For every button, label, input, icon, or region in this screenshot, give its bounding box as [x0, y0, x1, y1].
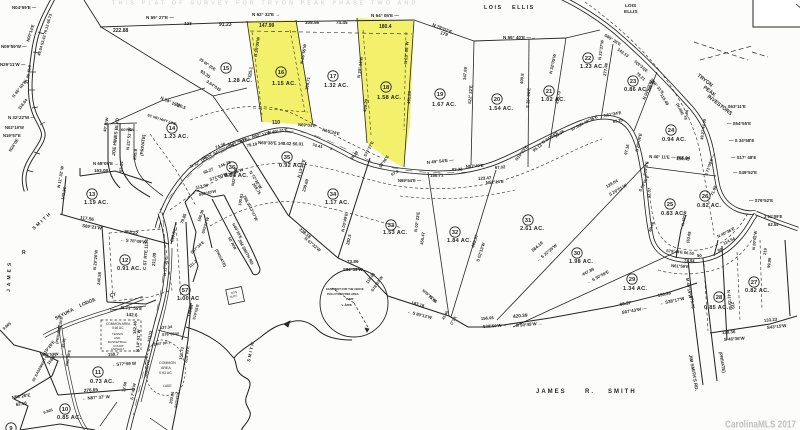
svg-text:276.65: 276.65 — [84, 387, 99, 393]
svg-text:CarolinaMLS 2017: CarolinaMLS 2017 — [725, 420, 796, 430]
svg-text:N 62° 32'E →: N 62° 32'E → — [252, 12, 280, 17]
svg-text:18: 18 — [383, 85, 390, 91]
svg-text:15: 15 — [223, 66, 230, 72]
svg-text:0.93 AC.: 0.93 AC. — [159, 371, 173, 375]
svg-text:137.34: 137.34 — [160, 324, 173, 330]
svg-text:1.84 AC.: 1.84 AC. — [447, 238, 471, 244]
svg-text:211.09: 211.09 — [151, 252, 157, 266]
svg-text:N 68°09'E →: N 68°09'E → — [93, 161, 119, 166]
svg-text:83.23: 83.23 — [452, 166, 463, 172]
svg-text:SMITH: SMITH — [608, 389, 637, 395]
svg-text:1.02 AC.: 1.02 AC. — [541, 97, 565, 103]
svg-text:LOIS: LOIS — [484, 5, 503, 11]
svg-text:N19°57'E: N19°57'E — [3, 133, 21, 138]
svg-text:S82°35'W: S82°35'W — [343, 267, 363, 272]
svg-text:1.19 AC.: 1.19 AC. — [84, 200, 108, 206]
svg-text:POLLUTION FREE AREA: POLLUTION FREE AREA — [327, 292, 359, 296]
svg-text:147.99: 147.99 — [259, 23, 275, 29]
svg-text:N 32°22'W —: N 32°22'W — — [8, 115, 35, 120]
svg-text:62.54: 62.54 — [768, 222, 779, 227]
svg-text:57: 57 — [182, 288, 188, 294]
svg-text:ASPHALT: ASPHALT — [111, 347, 125, 351]
svg-text:ELLIS: ELLIS — [512, 5, 535, 11]
svg-text:26: 26 — [702, 194, 709, 200]
svg-text:74.94: 74.94 — [684, 258, 695, 264]
svg-text:N02°19'W: N02°19'W — [5, 125, 24, 130]
svg-text:33: 33 — [388, 223, 395, 229]
svg-text:1.23 AC.: 1.23 AC. — [164, 134, 188, 140]
svg-text:THIS PLAT OF SURVEY FOR TRYON: THIS PLAT OF SURVEY FOR TRYON PEAK PHASE… — [112, 1, 418, 7]
svg-text:31: 31 — [525, 218, 532, 224]
svg-text:150.71: 150.71 — [430, 173, 444, 178]
svg-text:110: 110 — [272, 120, 280, 126]
svg-text:JAMES: JAMES — [6, 260, 13, 292]
svg-text:73.89: 73.89 — [347, 259, 359, 264]
svg-text:25: 25 — [667, 202, 674, 208]
svg-text:EASEMENT FOR THE ABOVE: EASEMENT FOR THE ABOVE — [326, 287, 364, 291]
svg-text:1.32 AC.: 1.32 AC. — [324, 83, 348, 89]
svg-text:PUMP: PUMP — [346, 297, 354, 301]
svg-text:AREA: AREA — [161, 366, 171, 370]
svg-text:0.66 AC.: 0.66 AC. — [112, 326, 124, 330]
svg-text:32: 32 — [452, 230, 458, 236]
svg-text:347.69: 347.69 — [462, 66, 468, 80]
svg-text:180.4: 180.4 — [379, 24, 392, 30]
svg-text:R.: R. — [585, 389, 595, 395]
svg-text:30: 30 — [574, 251, 580, 257]
svg-text:29: 29 — [629, 277, 636, 283]
svg-text:28: 28 — [716, 295, 723, 301]
svg-text:3 61°09'E: 3 61°09'E — [764, 214, 782, 219]
svg-text:COMMON: COMMON — [159, 361, 176, 365]
svg-text:←60'R/W→: ←60'R/W→ — [117, 127, 138, 132]
svg-text:154.45: 154.45 — [676, 156, 690, 161]
svg-text:— S54°55'E: — S54°55'E — [727, 121, 751, 126]
svg-text:1.58 AC.: 1.58 AC. — [377, 95, 401, 101]
svg-text:74.45: 74.45 — [336, 20, 348, 25]
svg-text:156.06: 156.06 — [481, 315, 495, 321]
svg-text:N69°54'E —: N69°54'E — — [398, 178, 422, 183]
svg-text:2.61 AC.: 2.61 AC. — [520, 226, 544, 232]
svg-text:N 59° 27'E —: N 59° 27'E — — [146, 15, 174, 20]
svg-text:1.98 AC.: 1.98 AC. — [569, 259, 593, 265]
svg-text:67.02: 67.02 — [495, 164, 506, 170]
svg-text:1.00 AC: 1.00 AC — [177, 296, 199, 302]
svg-text:22: 22 — [585, 56, 591, 62]
svg-text:— S 34°58'E: — S 34°58'E — [729, 138, 754, 143]
svg-text:R: R — [22, 250, 26, 256]
svg-text:14: 14 — [169, 126, 176, 132]
svg-text:0.94 AC.: 0.94 AC. — [662, 137, 686, 143]
svg-text:12: 12 — [122, 258, 128, 264]
svg-text:0.73 AC.: 0.73 AC. — [90, 379, 114, 385]
svg-text:— S76°52'E: — S76°52'E — [749, 198, 773, 203]
svg-text:N29°11'W —: N29°11'W — — [0, 62, 26, 67]
svg-text:91.23: 91.23 — [219, 22, 232, 28]
svg-text:1.23 AC.: 1.23 AC. — [580, 64, 604, 70]
svg-text:N 56° 40'E —→: N 56° 40'E —→ — [503, 35, 536, 40]
svg-text:50: 50 — [697, 253, 702, 258]
svg-text:27: 27 — [751, 280, 757, 286]
svg-text:N04°59'E —: N04°59'E — — [12, 5, 37, 10]
svg-text:1.28 AC.: 1.28 AC. — [228, 78, 252, 84]
svg-text:34: 34 — [330, 192, 337, 198]
svg-text:N09°59'W —: N09°59'W — — [1, 44, 27, 49]
svg-text:10: 10 — [62, 407, 68, 413]
svg-text:JAMES: JAMES — [536, 389, 567, 395]
svg-text:0.85 AC.: 0.85 AC. — [704, 305, 728, 311]
svg-text:35: 35 — [284, 155, 291, 161]
svg-text:162.46: 162.46 — [132, 320, 138, 334]
svg-text:159.7: 159.7 — [108, 351, 120, 357]
svg-text:1.34 AC.: 1.34 AC. — [623, 286, 647, 292]
svg-text:— S49°52'E: — S49°52'E — [733, 170, 757, 175]
svg-text:N 64° 05'E —: N 64° 05'E — — [371, 13, 399, 18]
svg-text:108.56: 108.56 — [305, 20, 319, 25]
svg-text:0.91 AC.: 0.91 AC. — [117, 266, 141, 272]
svg-text:142.6: 142.6 — [126, 312, 138, 318]
svg-text:23: 23 — [630, 79, 637, 85]
svg-text:41.07: 41.07 — [646, 187, 652, 198]
svg-text:24: 24 — [668, 128, 675, 134]
svg-text:0.85 AC.: 0.85 AC. — [57, 415, 81, 421]
svg-text:∿ Area: ∿ Area — [341, 303, 352, 307]
svg-text:1.15 AC.: 1.15 AC. — [272, 81, 296, 87]
svg-text:LOIS: LOIS — [625, 3, 637, 9]
svg-text:20: 20 — [494, 97, 500, 103]
svg-text:17: 17 — [330, 74, 336, 80]
svg-text:222.88: 222.88 — [113, 28, 129, 34]
svg-text:409.8: 409.8 — [519, 73, 525, 84]
svg-text:1.54 AC.: 1.54 AC. — [489, 106, 513, 112]
svg-text:ELLIS: ELLIS — [624, 9, 638, 15]
svg-text:270: 270 — [730, 302, 736, 310]
svg-text:LAKE: LAKE — [163, 384, 172, 388]
svg-text:16: 16 — [278, 70, 285, 76]
svg-text:1.67 AC.: 1.67 AC. — [432, 102, 456, 108]
svg-text:461.26: 461.26 — [406, 90, 412, 104]
svg-text:123: 123 — [184, 21, 192, 26]
svg-text:1.53 AC.: 1.53 AC. — [383, 230, 407, 236]
svg-text:0.82 AC.: 0.82 AC. — [745, 288, 769, 294]
svg-text:13: 13 — [89, 192, 96, 198]
svg-text:138.36: 138.36 — [722, 329, 736, 335]
svg-text:21: 21 — [546, 89, 553, 95]
svg-text:CT: CT — [109, 292, 116, 299]
svg-text:163.08: 163.08 — [94, 168, 108, 173]
svg-text:19: 19 — [437, 92, 444, 98]
svg-text:0.82 AC.: 0.82 AC. — [697, 203, 721, 209]
svg-text:— S17° 48'E: — S17° 48'E — [731, 155, 756, 160]
svg-text:1.17 AC.: 1.17 AC. — [325, 200, 349, 206]
svg-text:11: 11 — [95, 370, 102, 376]
